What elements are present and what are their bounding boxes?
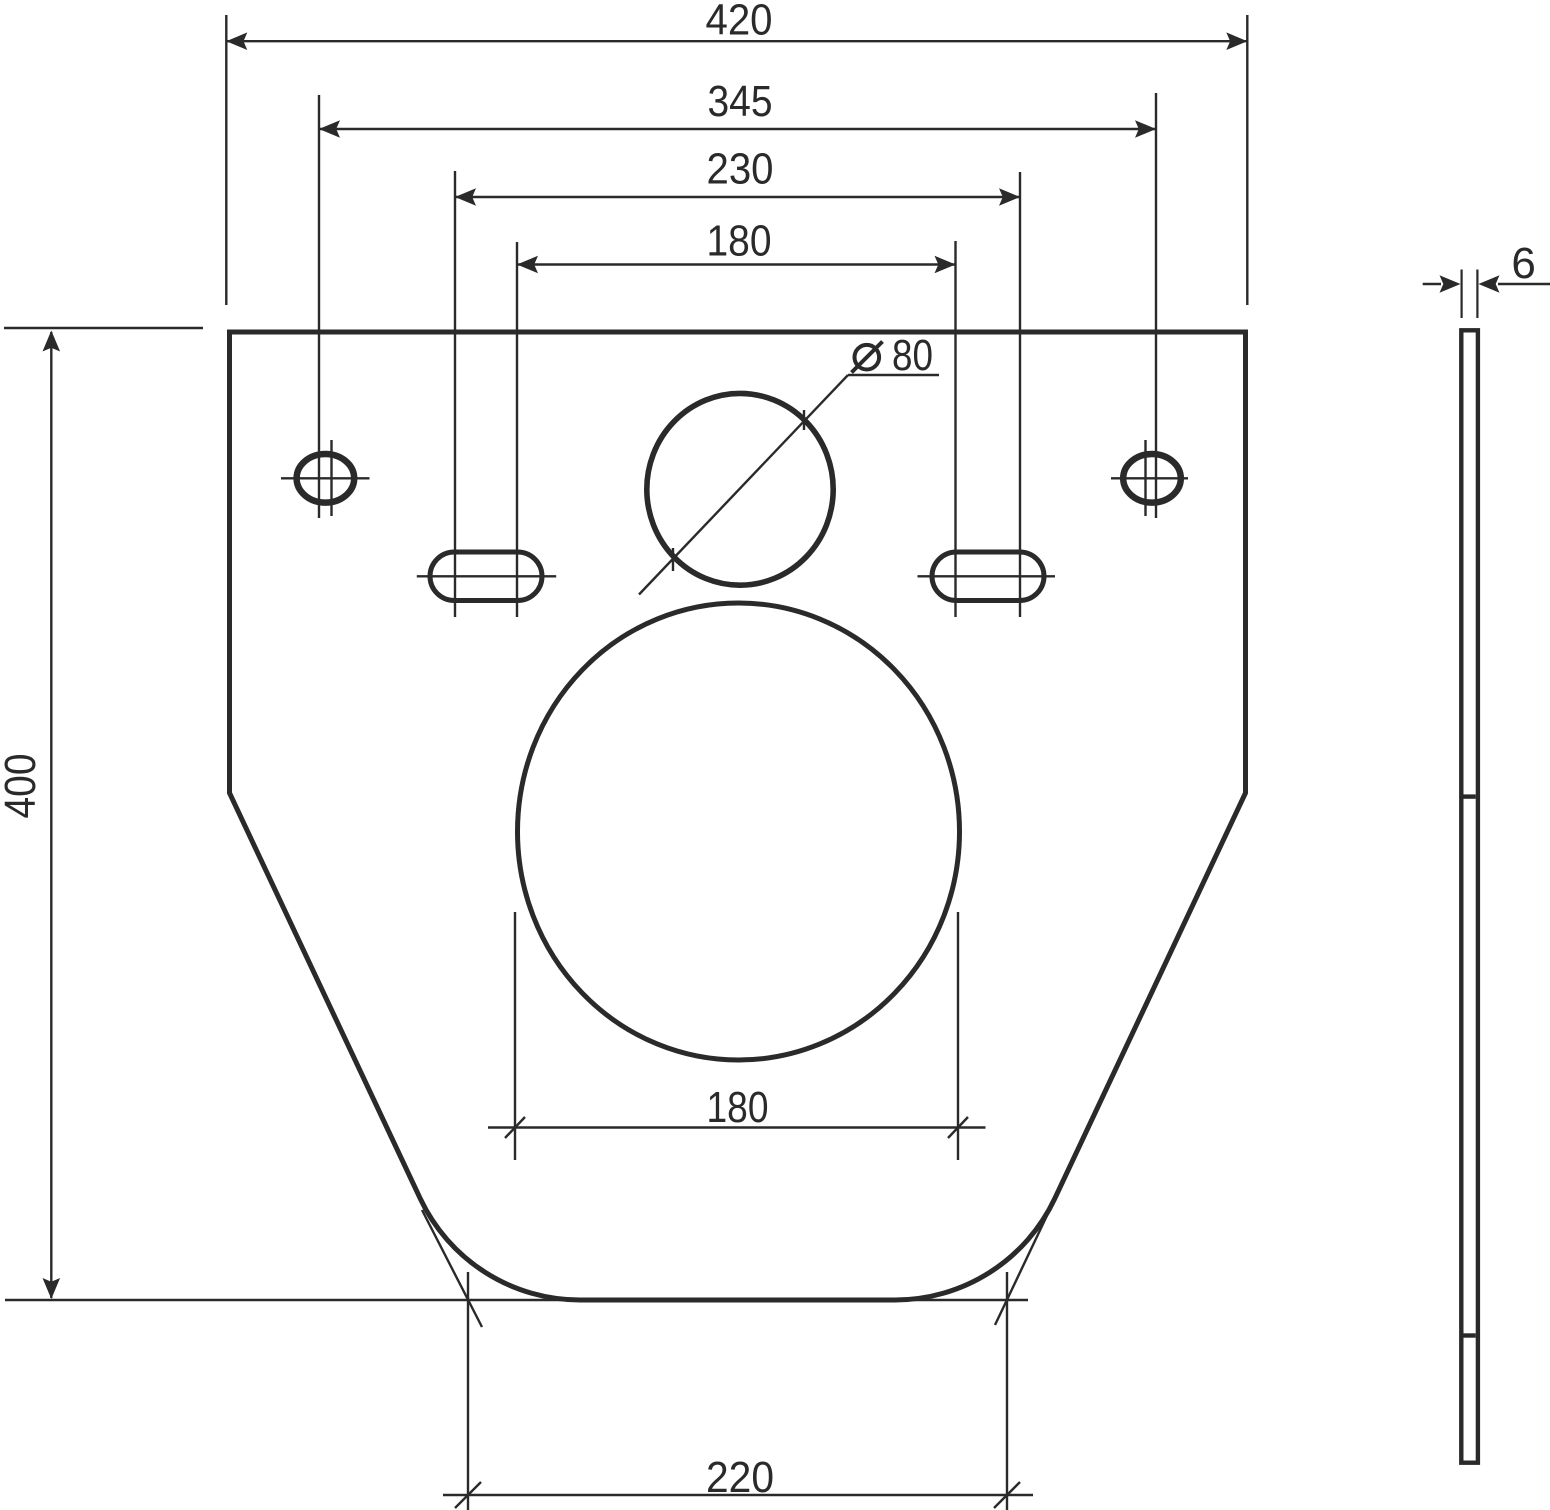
svg-text:400: 400 <box>0 754 45 819</box>
svg-text:80: 80 <box>892 331 933 380</box>
svg-text:180: 180 <box>707 217 772 266</box>
svg-text:180: 180 <box>707 1083 769 1132</box>
svg-text:6: 6 <box>1511 239 1535 288</box>
svg-text:230: 230 <box>707 145 774 194</box>
svg-text:345: 345 <box>708 77 773 126</box>
svg-text:220: 220 <box>706 1453 774 1502</box>
svg-text:420: 420 <box>706 0 773 45</box>
